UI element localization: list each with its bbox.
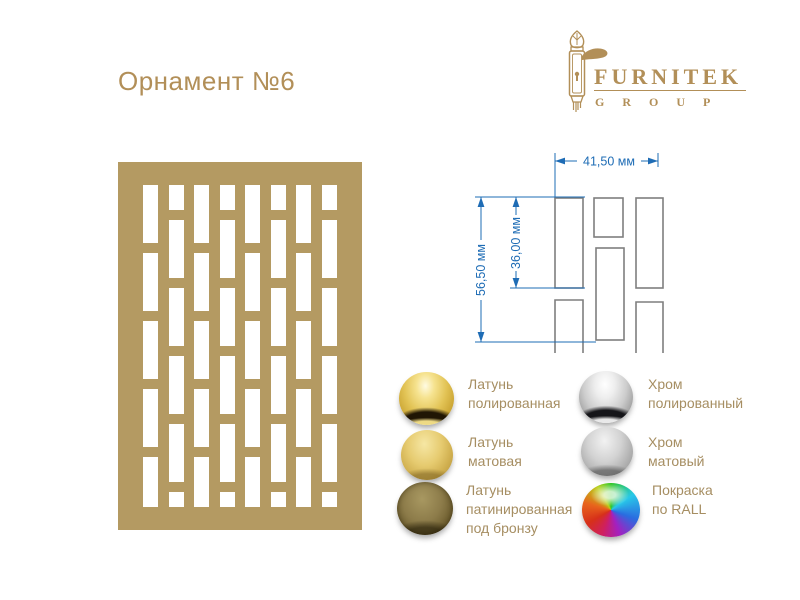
pattern-hole (143, 389, 158, 447)
finish-swatch-chrome-polished (579, 371, 633, 423)
pattern-hole (169, 492, 184, 507)
pattern-hole (220, 288, 235, 346)
finish-swatch-brass-polished (399, 372, 454, 425)
pattern-hole (220, 356, 235, 414)
finish-swatch-brass-matte (401, 430, 453, 480)
pattern-hole (322, 356, 337, 414)
finish-label-brass-matte: Латунь матовая (468, 433, 522, 471)
page-title: Орнамент №6 (118, 66, 295, 97)
brand-divider (594, 90, 746, 91)
pattern-hole (220, 220, 235, 278)
pattern-hole (245, 457, 260, 507)
brand-name: FURNITEK (594, 64, 742, 90)
catalog-page: Орнамент №6 FURNITEK G R O U P (0, 0, 800, 600)
pattern-hole (169, 288, 184, 346)
pattern-hole (169, 220, 184, 278)
pattern-hole (296, 185, 311, 243)
pattern-hole (322, 492, 337, 507)
pattern-hole (169, 185, 184, 210)
finish-label-ral-paint: Покраска по RALL (652, 481, 713, 519)
pattern-hole (194, 185, 209, 243)
pattern-hole (194, 389, 209, 447)
pattern-hole (245, 321, 260, 379)
pattern-hole (245, 253, 260, 311)
finish-label-chrome-polished: Хром полированный (648, 375, 743, 413)
pattern-hole (271, 424, 286, 482)
pattern-hole (194, 253, 209, 311)
pattern-hole (271, 220, 286, 278)
pattern-hole (220, 424, 235, 482)
pattern-hole (143, 185, 158, 243)
finish-label-chrome-matte: Хром матовый (648, 433, 704, 471)
pattern-hole (143, 321, 158, 379)
pattern-hole (245, 185, 260, 243)
pattern-hole (220, 492, 235, 507)
pattern-hole (271, 356, 286, 414)
finish-label-brass-polished: Латунь полированная (468, 375, 561, 413)
finish-swatch-ral-paint (582, 483, 640, 537)
pattern-hole (169, 424, 184, 482)
ornament-panel (118, 162, 362, 530)
furnitek-logo: FURNITEK G R O U P (556, 26, 766, 121)
pattern-hole (194, 457, 209, 507)
pattern-hole (271, 185, 286, 210)
pattern-hole (220, 185, 235, 210)
pattern-hole (322, 185, 337, 210)
pattern-hole (296, 321, 311, 379)
pattern-hole (245, 389, 260, 447)
dimension-drawing: 41,50 мм 56,50 мм 36,00 мм (455, 145, 705, 360)
dim-width-label: 41,50 мм (583, 155, 635, 169)
pattern-hole (169, 356, 184, 414)
ornament-pattern (143, 185, 337, 507)
pattern-fragment-outline (555, 198, 663, 353)
finish-swatch-chrome-matte (581, 427, 633, 476)
pattern-hole (296, 253, 311, 311)
finish-swatch-brass-patinated (397, 482, 453, 535)
pattern-hole (296, 389, 311, 447)
pattern-hole (271, 288, 286, 346)
pattern-hole (322, 288, 337, 346)
dim-inner-height-label: 36,00 мм (509, 217, 523, 269)
pattern-hole (322, 424, 337, 482)
pattern-hole (322, 220, 337, 278)
brand-group: G R O U P (595, 95, 718, 110)
finish-label-brass-patinated: Латунь патинированная под бронзу (466, 481, 572, 538)
pattern-hole (194, 321, 209, 379)
dimension-lines (475, 153, 658, 342)
pattern-hole (271, 492, 286, 507)
pattern-hole (296, 457, 311, 507)
dim-outer-height-label: 56,50 мм (474, 244, 488, 296)
pattern-hole (143, 253, 158, 311)
pattern-hole (143, 457, 158, 507)
